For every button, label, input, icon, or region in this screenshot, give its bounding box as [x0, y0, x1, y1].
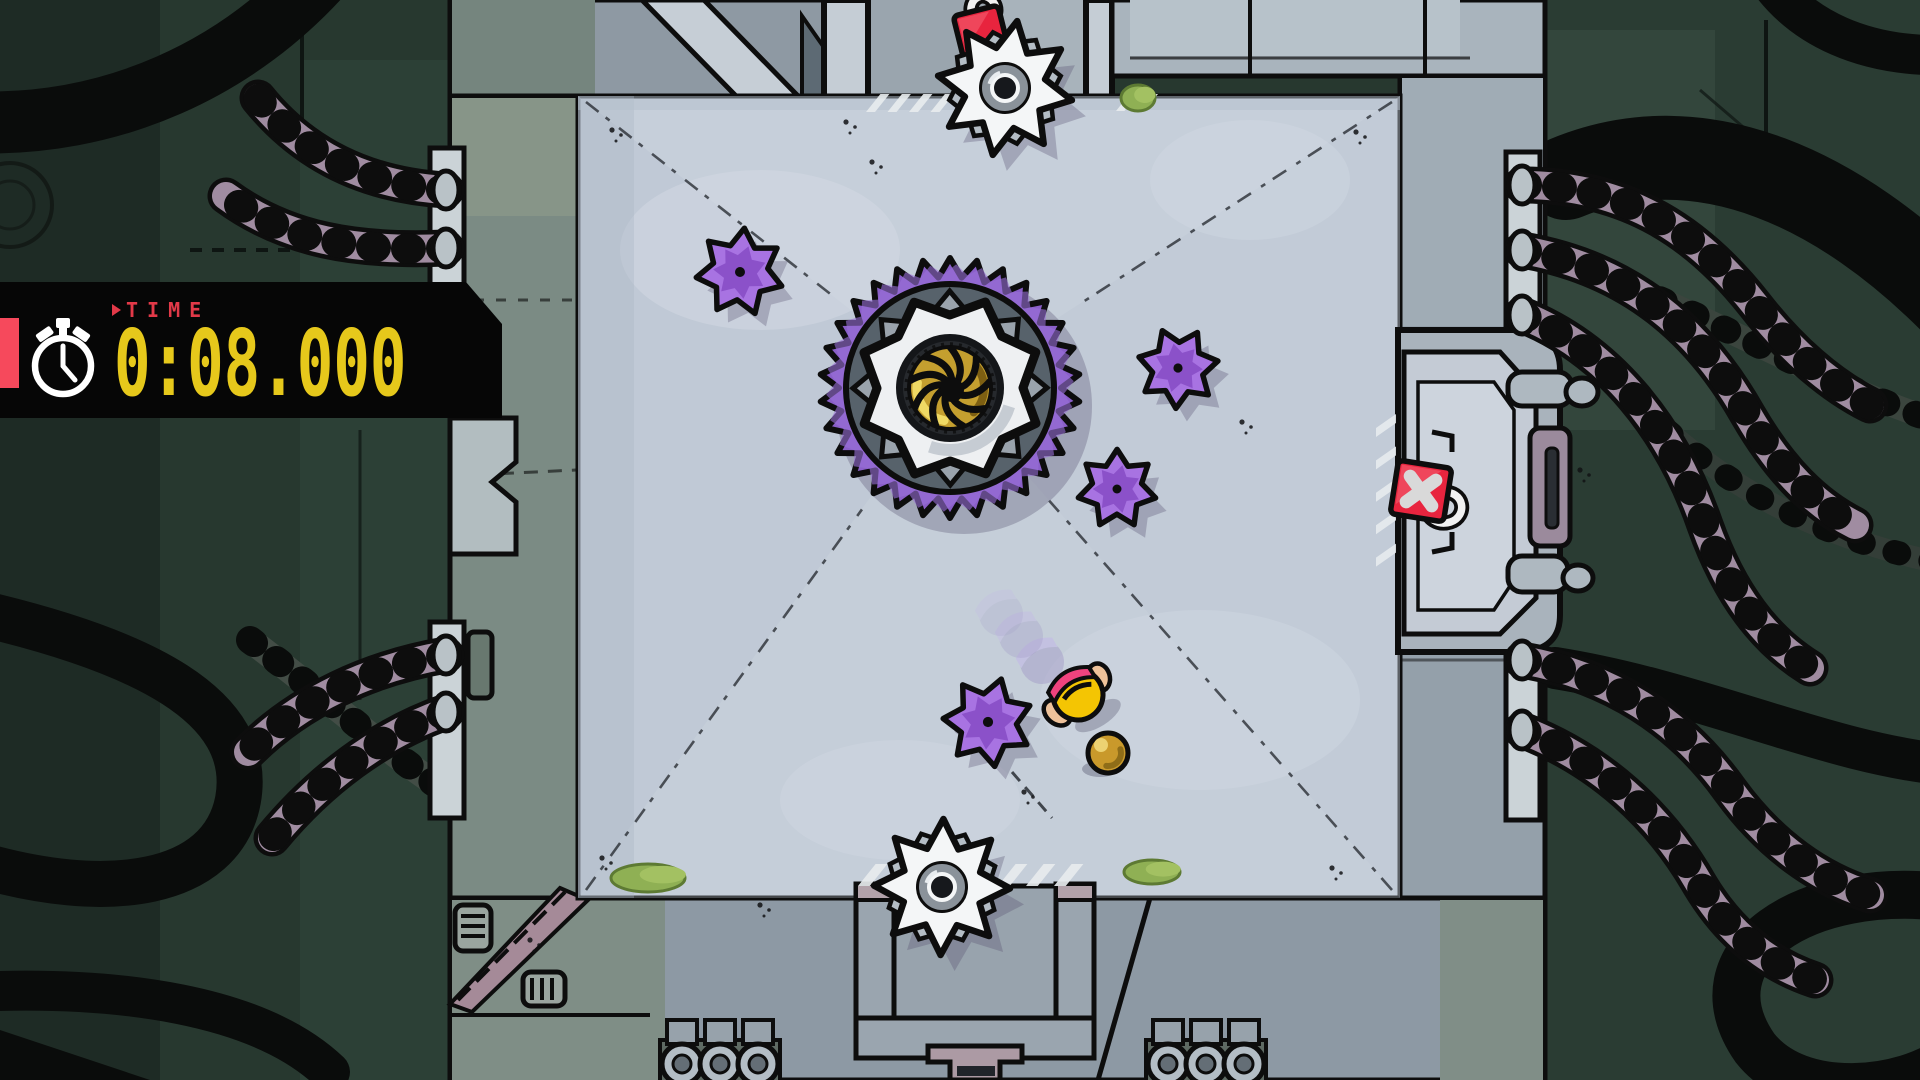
game-viewport[interactable]: [0, 0, 1920, 1080]
time-panel: TIME 0:08.000: [0, 282, 502, 418]
game-screen: TIME 0:08.000: [0, 0, 1920, 1080]
time-accent-bar: [0, 318, 19, 388]
stopwatch-icon: [30, 318, 96, 404]
time-value: 0:08.000: [114, 318, 406, 410]
